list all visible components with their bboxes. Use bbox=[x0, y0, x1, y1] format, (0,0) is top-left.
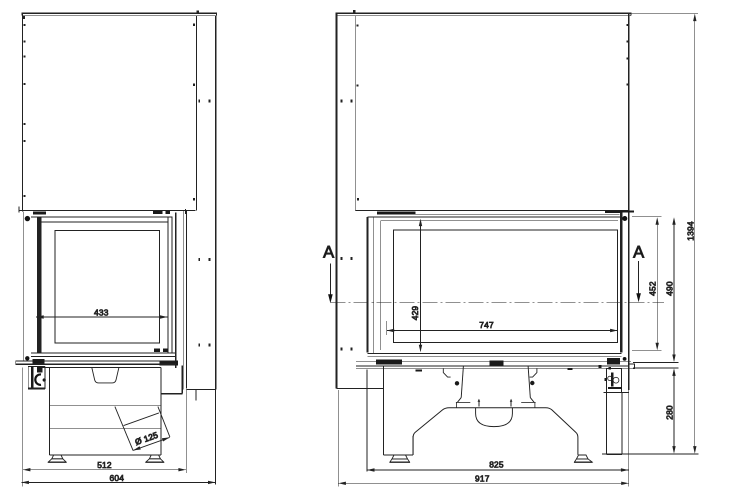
svg-text:452: 452 bbox=[647, 281, 657, 296]
svg-text:512: 512 bbox=[97, 460, 112, 470]
svg-text:429: 429 bbox=[410, 306, 420, 321]
svg-text:Ø 125: Ø 125 bbox=[134, 430, 160, 447]
svg-text:825: 825 bbox=[489, 460, 504, 470]
svg-text:A: A bbox=[323, 244, 334, 262]
svg-text:433: 433 bbox=[94, 307, 109, 317]
svg-text:917: 917 bbox=[475, 474, 490, 484]
svg-text:490: 490 bbox=[664, 281, 674, 296]
svg-text:1394: 1394 bbox=[685, 221, 695, 241]
svg-text:604: 604 bbox=[110, 473, 125, 483]
svg-text:747: 747 bbox=[479, 320, 494, 330]
svg-text:A: A bbox=[633, 244, 644, 262]
svg-text:280: 280 bbox=[664, 405, 674, 420]
